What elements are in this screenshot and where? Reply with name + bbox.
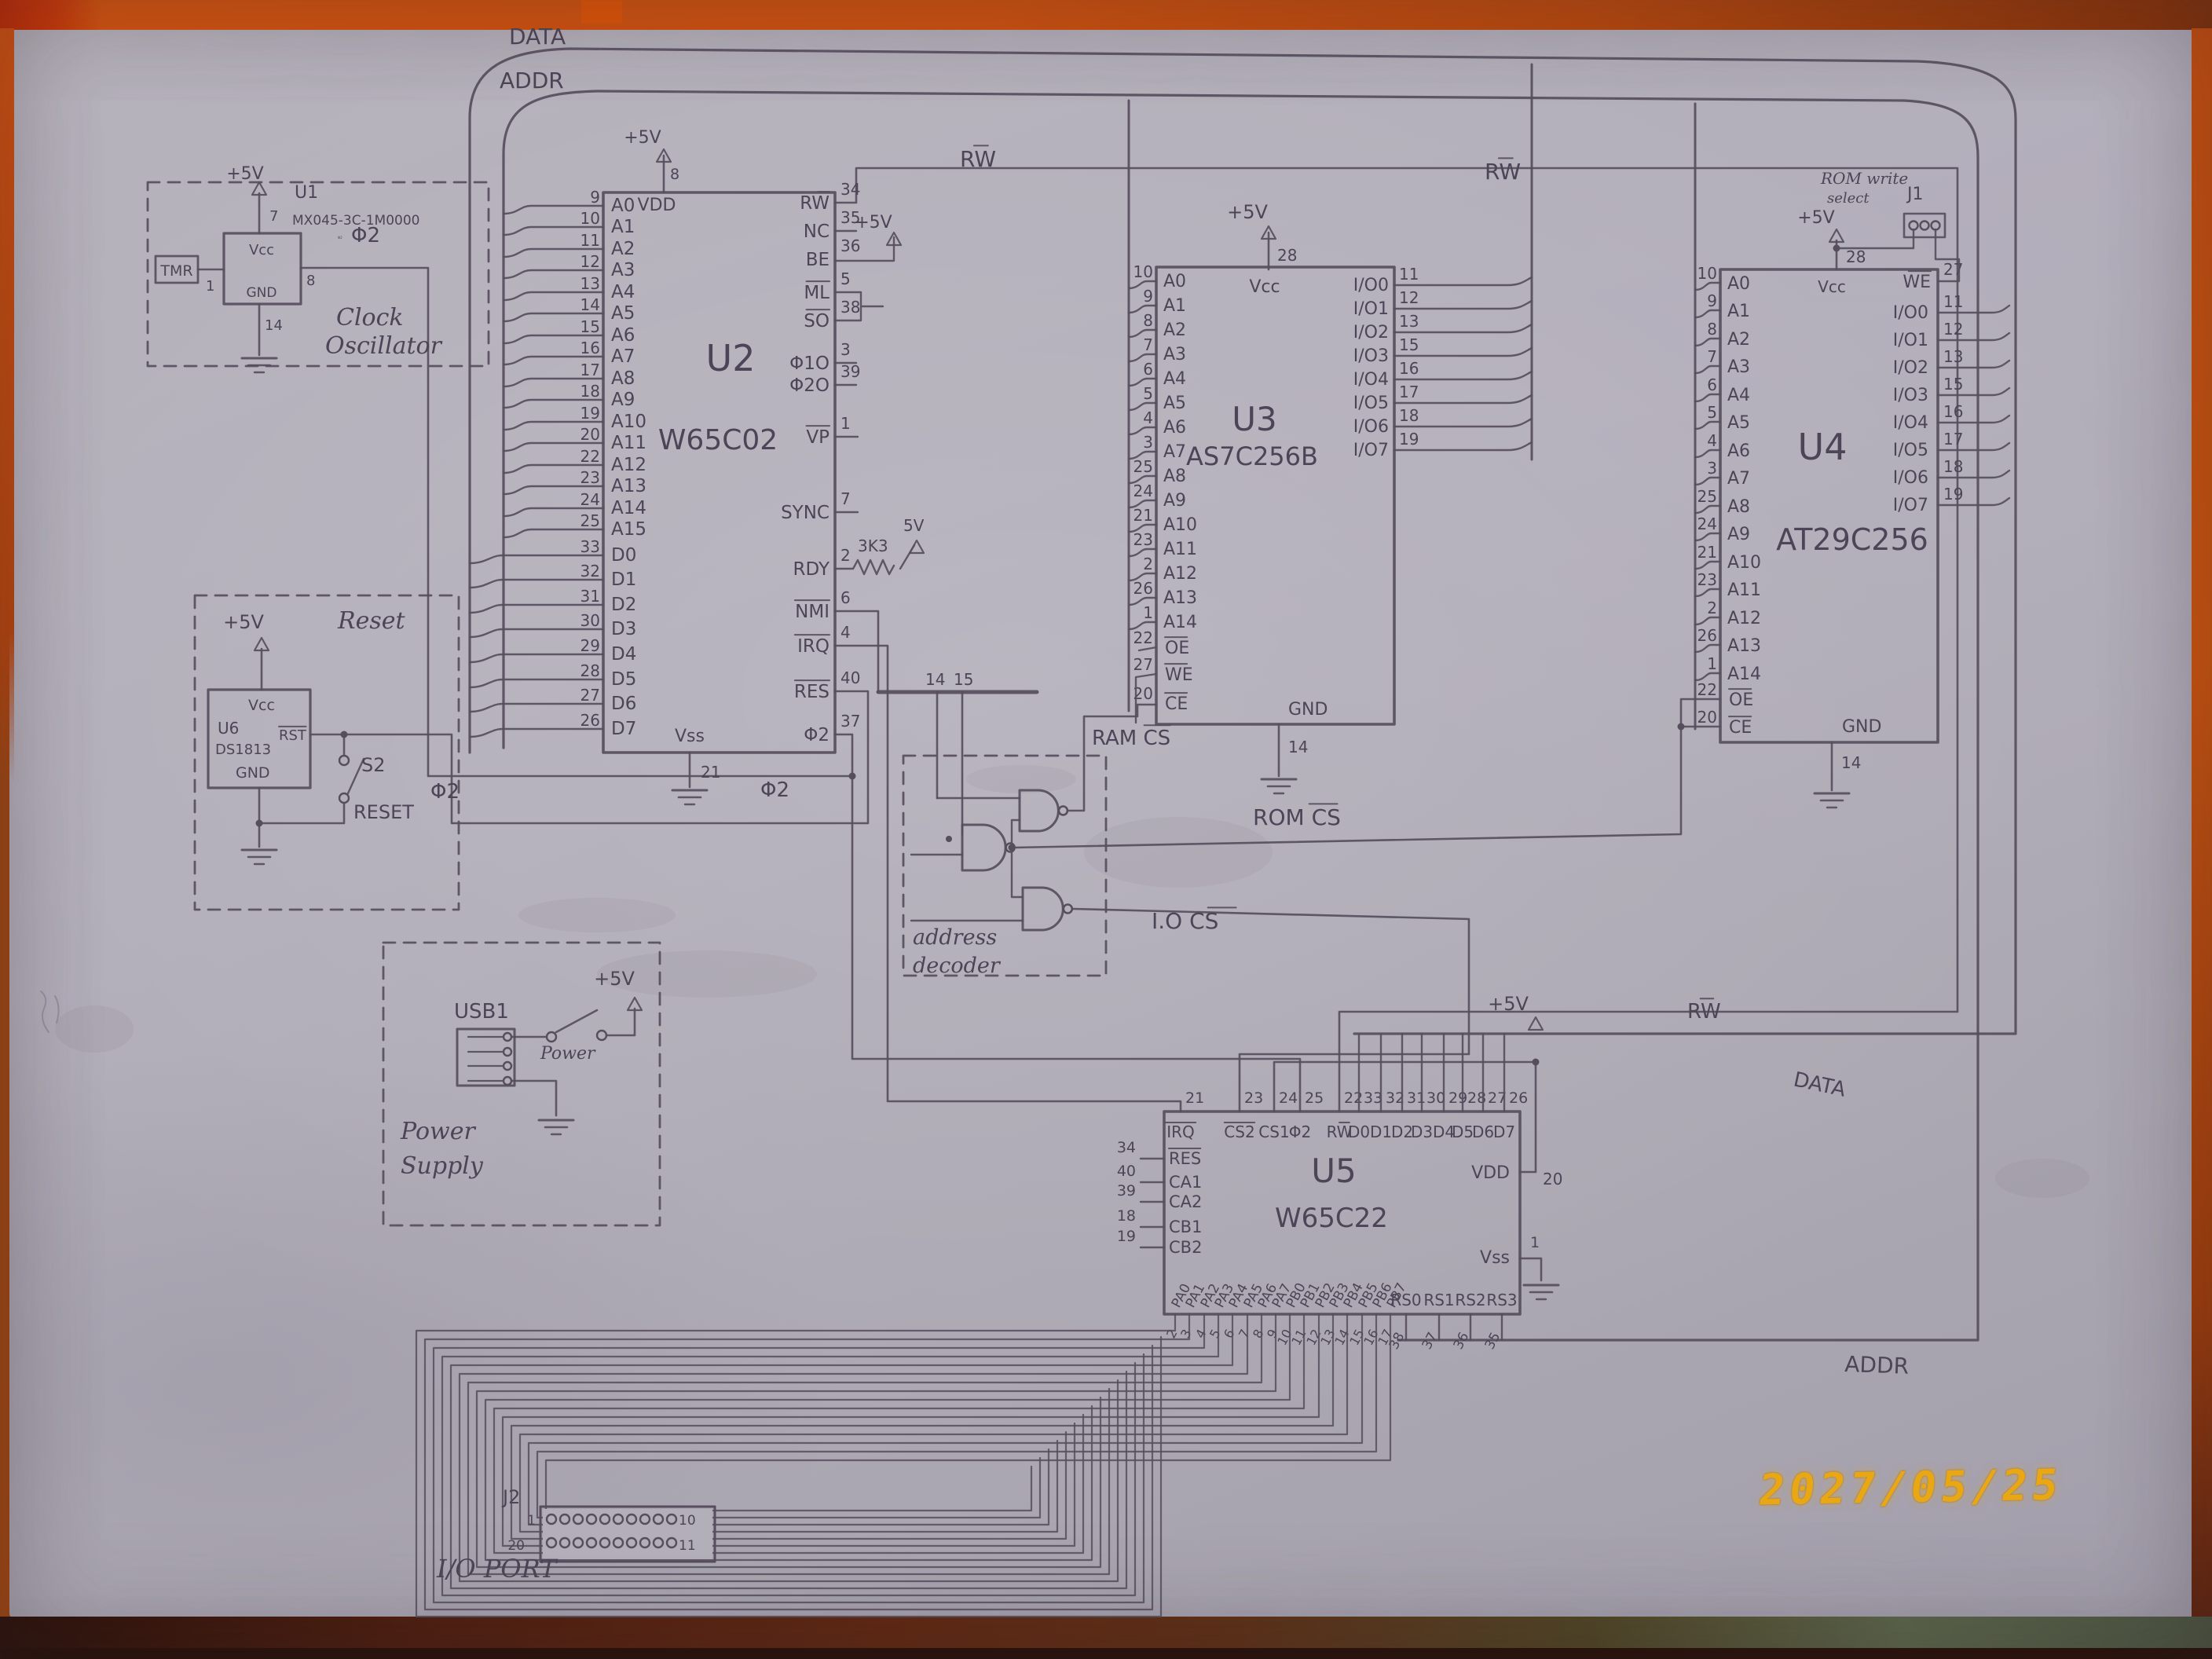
connector-pin (654, 1538, 663, 1547)
port-wire (537, 1314, 1376, 1518)
label: +5V (855, 213, 892, 233)
pin-number: 34 (840, 180, 860, 199)
pin-number: 17 (1399, 383, 1419, 401)
port-wire (529, 1314, 1362, 1525)
pin-label: A14 (611, 498, 646, 518)
pin-number: 6 (1143, 360, 1153, 379)
junction-dot (341, 731, 348, 738)
pin-label: A2 (1163, 320, 1186, 340)
inverter-bubble-icon (1064, 905, 1072, 914)
pin-label: A0 (1727, 274, 1750, 294)
connector-pin (1921, 222, 1929, 230)
pin-label: IRQ (797, 636, 829, 657)
pin-number: 24 (1279, 1090, 1298, 1107)
pin-number: 24 (1697, 515, 1717, 533)
pin-label: A11 (1163, 540, 1197, 559)
pin-label: Φ2 (804, 725, 829, 745)
pin-label: RDY (793, 559, 830, 580)
nand-mid (962, 825, 1005, 870)
pin-number: 24 (1133, 482, 1153, 500)
pin-number: 28 (580, 661, 600, 680)
pin-label: A3 (1727, 357, 1750, 377)
pin-label: A5 (1163, 394, 1186, 413)
pin-number: 15 (1399, 335, 1419, 354)
pin-label: A8 (611, 368, 635, 389)
label: 7 (269, 208, 278, 225)
pin-number: 11 (1943, 292, 1963, 311)
pin-number: 16 (1399, 359, 1419, 378)
pin-number: 19 (1399, 430, 1419, 449)
pin-label: A0 (1163, 272, 1186, 291)
pin-number: 9 (590, 188, 600, 207)
pin-label: CA2 (1169, 1192, 1202, 1211)
smudge (1995, 1159, 2089, 1198)
wire (1520, 1258, 1541, 1280)
pin-number: 11 (580, 231, 600, 250)
pin-number: 2 (1707, 599, 1717, 617)
pin-wire (1695, 366, 1720, 373)
pin-number: 38 (840, 298, 860, 317)
pin-label: I/O2 (1893, 358, 1928, 378)
pin-label: A4 (611, 282, 635, 302)
pin-number: 11 (1399, 265, 1419, 284)
connector-pin (504, 1062, 511, 1070)
pin-wire (470, 729, 603, 737)
pin-number: 17 (580, 361, 600, 379)
pin-number: 16 (1943, 402, 1963, 421)
pin-label: D0 (611, 545, 636, 566)
pin-label: D4 (611, 644, 636, 665)
pin-number: 10 (580, 209, 600, 228)
pin-number: 27 (1133, 655, 1153, 674)
connector-pin (627, 1514, 636, 1524)
pin-number: 31 (1407, 1090, 1426, 1107)
pin-label: RW (800, 193, 829, 214)
pin-label: RS3 (1486, 1291, 1517, 1309)
pin-label: A7 (1163, 442, 1186, 462)
pin-wire (1695, 506, 1720, 513)
pin-number: 13 (1943, 347, 1963, 366)
pin-label: I/O0 (1353, 276, 1389, 295)
pin-label: CE (1729, 718, 1752, 738)
pin-label: A9 (611, 390, 635, 410)
pin-wire (1695, 478, 1720, 485)
io-port-label: I/O PORT (436, 1554, 558, 1584)
pin-number: 4 (840, 623, 851, 642)
label: 14 (1841, 753, 1861, 772)
pin-number: 30 (580, 611, 600, 630)
pin-label: D1 (611, 569, 636, 590)
label: +5V (1227, 201, 1268, 223)
label: 8 (306, 273, 315, 289)
pin-number: 2 (1143, 555, 1153, 573)
pin-number: 14 (580, 295, 600, 314)
pin-number: 10 (1697, 264, 1717, 283)
connector-pin (597, 1031, 606, 1040)
pin-number: 9 (1707, 291, 1717, 310)
pin-label: A6 (1727, 441, 1750, 461)
pin-label: D0 (1348, 1122, 1370, 1141)
pin-wire (1695, 589, 1720, 596)
connector-pin (654, 1514, 663, 1524)
pin-label: A10 (1727, 553, 1761, 573)
pin-label: A6 (1163, 418, 1186, 438)
clock-title: Clock (336, 304, 404, 331)
pin-number: 18 (580, 382, 600, 401)
pin-number: 20 (580, 425, 600, 444)
ram-cs-net (1068, 705, 1156, 811)
pin-number: 15 (580, 317, 600, 336)
pin-label: A12 (611, 455, 646, 475)
label: 14 (1288, 738, 1308, 756)
pin-number: 22 (1344, 1090, 1363, 1107)
connector-pin (504, 1077, 511, 1085)
pin-label: A12 (1163, 564, 1197, 584)
pin-label: NMI (795, 602, 829, 622)
pin-label: A0 (611, 196, 635, 216)
vss-label: Vss (675, 727, 705, 746)
pin-label: A14 (1727, 665, 1761, 684)
connector-pin (613, 1514, 623, 1524)
pin-number: 1 (1143, 603, 1153, 622)
pin-label: RS1 (1423, 1291, 1454, 1309)
pin-label: I/O5 (1353, 394, 1389, 413)
smudge (1084, 817, 1273, 888)
pin-number: 31 (580, 587, 600, 606)
connector-pin (667, 1538, 676, 1547)
pin-label: SYNC (781, 503, 829, 523)
pin-number: 12 (1943, 320, 1963, 339)
gnd-label: GND (1288, 700, 1328, 720)
pin-number: 13 (580, 274, 600, 293)
pin-number: 8 (1143, 311, 1153, 330)
pin-number: 36 (840, 236, 860, 255)
pin-number: 27 (1943, 260, 1963, 279)
u2-ref: U2 (706, 337, 756, 379)
photo-of-schematic: +5VU1MX045-3C-1M0000Φ2TMRVccGND71814Cloc… (0, 0, 2212, 1659)
label: 5V (903, 516, 925, 535)
pin-label: CB2 (1169, 1238, 1202, 1257)
pin-label: I/O7 (1893, 496, 1928, 515)
pin-number: 4 (1143, 408, 1153, 427)
pin-number: 27 (580, 686, 600, 705)
j2-label: J2 (501, 1486, 520, 1508)
label: RST (279, 727, 307, 744)
phi2-label: Φ2 (430, 780, 460, 804)
port-wire (546, 1314, 1390, 1511)
pin-number: 39 (1117, 1182, 1136, 1199)
pin-number: 11 (679, 1538, 696, 1554)
pin-number: 3 (840, 340, 851, 359)
pin-label: A3 (1163, 345, 1186, 364)
pin-label: A5 (1727, 413, 1750, 433)
label: +5V (1797, 208, 1834, 228)
pin-label: A11 (611, 433, 646, 453)
pin-label: I/O3 (1353, 346, 1389, 366)
power-title: Power (400, 1118, 476, 1145)
vcc-label: Vcc (1818, 277, 1846, 296)
junction-dot (1678, 723, 1685, 731)
pin-number: 19 (1117, 1228, 1136, 1245)
connector-pin (573, 1538, 583, 1547)
junction-dot (1833, 245, 1840, 252)
pin-number: 21 (701, 763, 720, 782)
label: Vcc (248, 697, 275, 714)
io-cs-net (1072, 909, 1469, 1111)
wire (512, 1081, 556, 1115)
pin-label: ML (804, 283, 829, 303)
pin-label: A11 (1727, 580, 1761, 600)
pin-number: 37 (840, 712, 860, 731)
pin-number: 25 (1133, 457, 1153, 476)
pin-number: 10 (679, 1513, 696, 1529)
pin-label: RS0 (1390, 1291, 1421, 1309)
pin-label: D7 (611, 719, 636, 739)
pin-number: 7 (840, 489, 851, 508)
connector-pin (627, 1538, 636, 1547)
pin-number: 7 (1143, 335, 1153, 354)
ram-cs-label: RAM CS (1092, 727, 1170, 750)
connector-pin (667, 1514, 676, 1524)
connector-pin (547, 1538, 556, 1547)
tmr-label: TMR (159, 262, 192, 280)
pin-wire (1695, 450, 1720, 457)
label: 8 (670, 166, 679, 183)
pin-number: 19 (580, 404, 600, 423)
pin-label: I/O3 (1893, 386, 1928, 405)
pin-label: D5 (611, 669, 636, 690)
pin-label: D5 (1452, 1122, 1474, 1141)
u3-ref: U3 (1232, 400, 1276, 438)
pin-number: 7 (1707, 347, 1717, 366)
pin-label: I/O2 (1353, 323, 1389, 342)
pin-number: 1 (1707, 654, 1717, 673)
data-bus-label: DATA (509, 24, 566, 49)
pin-label: IRQ (1166, 1122, 1195, 1141)
pin-label: A8 (1727, 497, 1750, 517)
pin-label: A15 (611, 519, 646, 540)
plus5-label: +5V (226, 164, 263, 184)
pin-number: 37 (1419, 1330, 1441, 1352)
pin-label: A10 (1163, 515, 1197, 535)
pin-label: D6 (611, 694, 636, 714)
pin-label: A9 (1727, 525, 1750, 544)
vdd-net (1520, 1062, 1536, 1172)
pin-number: 30 (1426, 1090, 1445, 1107)
connector-pin (600, 1538, 610, 1547)
label: +5V (223, 611, 264, 633)
pin-number: 18 (1399, 406, 1419, 425)
pin-wire (1695, 673, 1720, 680)
pin-label: BE (806, 250, 829, 270)
pin-label: D3 (1411, 1122, 1433, 1141)
reset-title: Reset (337, 607, 405, 635)
junction-dot (849, 773, 856, 780)
pin-number: 21 (1697, 543, 1717, 562)
label: 20 (1543, 1170, 1562, 1188)
pin-number: 25 (580, 511, 600, 530)
pin-number: 22 (580, 447, 600, 466)
pin-number: 25 (1305, 1090, 1324, 1107)
pin-label: A3 (611, 260, 635, 280)
pin-label: I/O4 (1893, 413, 1928, 433)
pin-label: A13 (611, 476, 646, 496)
connector-pin (504, 1033, 511, 1041)
addr-bus (504, 91, 1978, 1340)
pin-label: RS2 (1455, 1291, 1485, 1309)
pin-number: 1 (840, 414, 851, 433)
connector-pin (339, 793, 349, 803)
pin-label: Φ1O (789, 353, 829, 374)
decoder-title: address (913, 925, 997, 950)
pin-number: 39 (840, 362, 860, 381)
pin-label: I/O7 (1353, 441, 1389, 460)
pin-number: 5 (840, 269, 851, 288)
label: 1 (1530, 1234, 1540, 1251)
pin-label: I/O6 (1893, 468, 1928, 488)
pin-number: 20 (1697, 708, 1717, 727)
pin-number: 19 (1943, 485, 1963, 504)
pin-label: A12 (1727, 609, 1761, 628)
pin-label: A5 (611, 303, 635, 324)
pin-label: A4 (1163, 369, 1186, 389)
pin-wire (1695, 562, 1720, 569)
clock-title: Oscillator (325, 332, 443, 360)
vss-label: Vss (1480, 1248, 1510, 1268)
connector-pin (613, 1538, 623, 1547)
vcc-label: Vcc (1249, 277, 1280, 297)
pin-label: D1 (1370, 1122, 1392, 1141)
pin-label: I/O5 (1893, 441, 1928, 460)
pin-number: 10 (1133, 262, 1153, 281)
label: Vcc (249, 242, 274, 258)
connector-pin (640, 1538, 650, 1547)
connector-pin (600, 1514, 610, 1524)
pin-label: NC (804, 222, 829, 242)
data-bus-label: DATA (1792, 1068, 1848, 1102)
pin-number: 20 (507, 1538, 525, 1554)
pin-number: 33 (580, 537, 600, 556)
pin-number: 13 (1399, 312, 1419, 331)
pin-label: CB1 (1169, 1218, 1202, 1236)
pin-label: CS1 (1258, 1122, 1289, 1141)
pin-label: A6 (611, 325, 635, 346)
pin-wire (1695, 422, 1720, 429)
pin-label: A13 (1727, 636, 1761, 656)
pin-number: 23 (580, 468, 600, 487)
label: GND (236, 764, 270, 782)
pin-number: 23 (1133, 530, 1153, 549)
pin-number: 3 (1143, 433, 1153, 452)
pin-number: 26 (1509, 1090, 1528, 1107)
pin-label: Φ2 (1289, 1122, 1311, 1141)
connector-pin (560, 1538, 569, 1547)
pin-label: A9 (1163, 491, 1186, 511)
pin-label: A1 (611, 217, 635, 237)
nand-io (1023, 888, 1063, 930)
connector-pin (547, 1514, 556, 1524)
pin-label: D6 (1472, 1122, 1494, 1141)
connector-pin (504, 1048, 511, 1056)
pin-number: 25 (1697, 487, 1717, 506)
pin-number: 22 (1697, 680, 1717, 699)
pin-number: 16 (580, 339, 600, 357)
u2-part: W65C02 (658, 424, 778, 456)
pin-wire (1695, 617, 1720, 624)
pin-number: 26 (1133, 579, 1153, 598)
pin-label: CE (1165, 694, 1188, 714)
port-wire (520, 1314, 1347, 1532)
pin-label: D2 (1391, 1122, 1413, 1141)
pin-number: 5 (1707, 403, 1717, 422)
usb1-label: USB1 (454, 1000, 509, 1024)
connector-pin (587, 1514, 596, 1524)
decoder-title: decoder (913, 954, 1002, 978)
pin-number: 6 (840, 588, 851, 607)
u4-ref: U4 (1798, 426, 1848, 468)
pin-label: OE (1729, 690, 1753, 710)
pin-label: A7 (611, 346, 635, 367)
label: +5V (624, 128, 661, 148)
connector-pin (587, 1538, 596, 1547)
pin-number: 40 (1117, 1163, 1136, 1180)
pin-label: D7 (1493, 1122, 1515, 1141)
pin-wire (1695, 310, 1720, 317)
rom-write-label: select (1827, 190, 1870, 207)
vdd-label: VDD (638, 196, 676, 215)
resistor-value: 3K3 (858, 537, 888, 555)
pin-number: 32 (580, 562, 600, 580)
pin-wire (504, 529, 603, 537)
pin-label: VP (806, 427, 829, 448)
pin-number: 34 (1117, 1139, 1136, 1156)
rw-label: RW (960, 146, 996, 172)
pin-wire (1695, 283, 1720, 290)
schematic-drawing: +5VU1MX045-3C-1M0000Φ2TMRVccGND71814Cloc… (0, 0, 2212, 1659)
u1-ref: U1 (295, 183, 318, 203)
phi2-label: Φ2 (351, 224, 380, 247)
pin-number: 24 (580, 490, 600, 509)
pin-label: WE (1165, 665, 1193, 685)
pin-label: A1 (1727, 302, 1750, 321)
pin-label: Φ2O (789, 375, 829, 396)
pin-number: 9 (1143, 287, 1153, 306)
label: 14 (925, 670, 945, 689)
vdd-label: VDD (1471, 1163, 1510, 1183)
pin-label: I/O1 (1893, 331, 1928, 350)
pin-label: D2 (611, 595, 636, 615)
pin-number: 29 (1448, 1090, 1467, 1107)
nand-ram (1020, 790, 1058, 831)
reset-switch-net (259, 734, 344, 823)
pin-number: 1 (527, 1513, 536, 1529)
pin-number: 17 (1943, 430, 1963, 449)
label: +5V (594, 968, 635, 990)
pin-label: I/O0 (1893, 303, 1928, 323)
pin-number: 5 (1143, 384, 1153, 403)
connector-pin (547, 1032, 556, 1042)
power-switch-label: Power (540, 1044, 596, 1064)
hidden: Φ2 (338, 236, 342, 240)
pin-label: A2 (611, 239, 635, 259)
pin-label: D3 (611, 619, 636, 639)
pin-label: CA1 (1169, 1173, 1202, 1192)
pin-number: 21 (1185, 1090, 1204, 1107)
u5-part: W65C22 (1275, 1203, 1388, 1234)
connector-pin (573, 1514, 583, 1524)
addr-bus-label: ADDR (500, 68, 564, 93)
pin-number: 33 (1364, 1090, 1382, 1107)
